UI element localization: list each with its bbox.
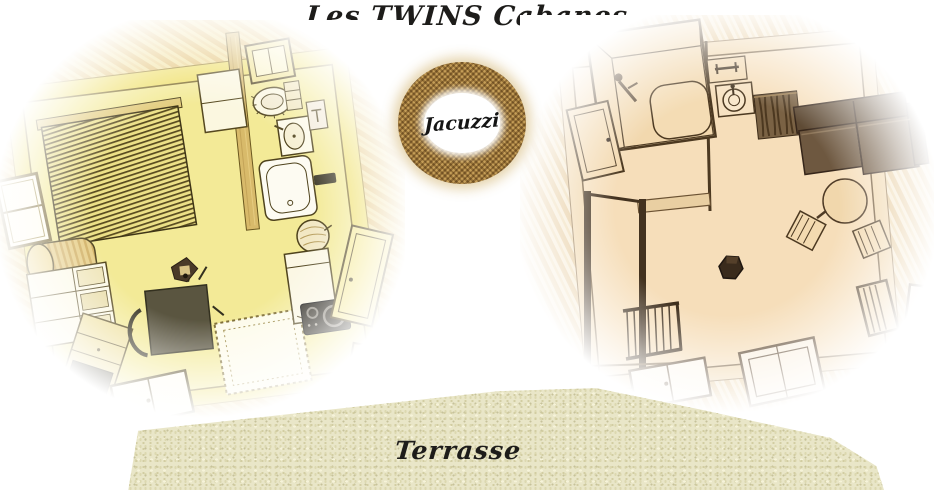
- left-cabin-plan: [0, 20, 405, 420]
- mirror: [306, 100, 328, 130]
- bed: [36, 97, 200, 246]
- right-cabin-plan: [520, 15, 934, 415]
- jacuzzi-badge: Jacuzzi: [398, 62, 526, 184]
- wall-cabinet: [197, 69, 247, 132]
- right-plan-drawing: [520, 15, 934, 415]
- washbasin: [716, 82, 755, 117]
- terrace-label: Terrasse: [392, 436, 525, 465]
- jacuzzi-label: Jacuzzi: [424, 109, 499, 136]
- poster: Les TWINS Cabanes: [0, 0, 934, 490]
- bathtub: [258, 155, 318, 222]
- bathroom-window: [245, 38, 295, 83]
- left-plan-drawing: [0, 20, 405, 420]
- second-door: [345, 343, 393, 399]
- towel-shelf: [707, 56, 747, 83]
- jacuzzi-badge-center: Jacuzzi: [424, 93, 500, 153]
